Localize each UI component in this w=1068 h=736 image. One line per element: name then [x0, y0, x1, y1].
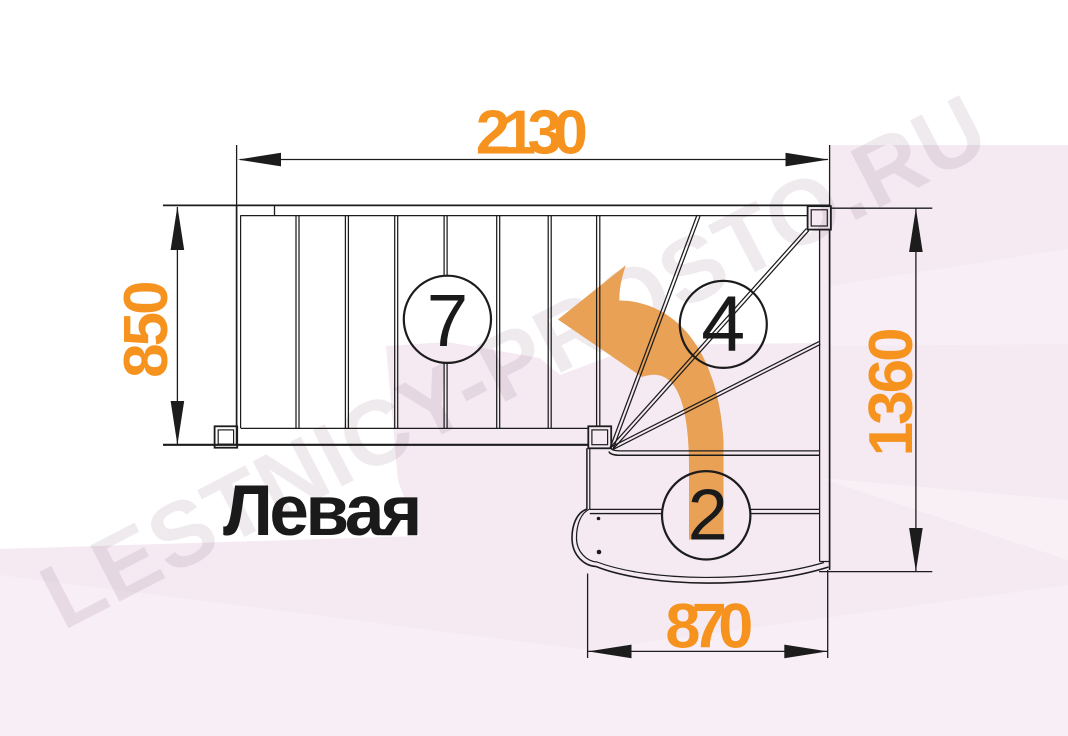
svg-text:4: 4: [701, 279, 745, 368]
svg-text:Левая: Левая: [223, 472, 419, 551]
svg-text:2130: 2130: [476, 99, 586, 168]
svg-text:870: 870: [665, 592, 751, 662]
svg-text:1360: 1360: [857, 330, 926, 456]
svg-text:850: 850: [112, 283, 181, 378]
svg-text:2: 2: [688, 475, 728, 555]
svg-text:7: 7: [427, 279, 468, 362]
